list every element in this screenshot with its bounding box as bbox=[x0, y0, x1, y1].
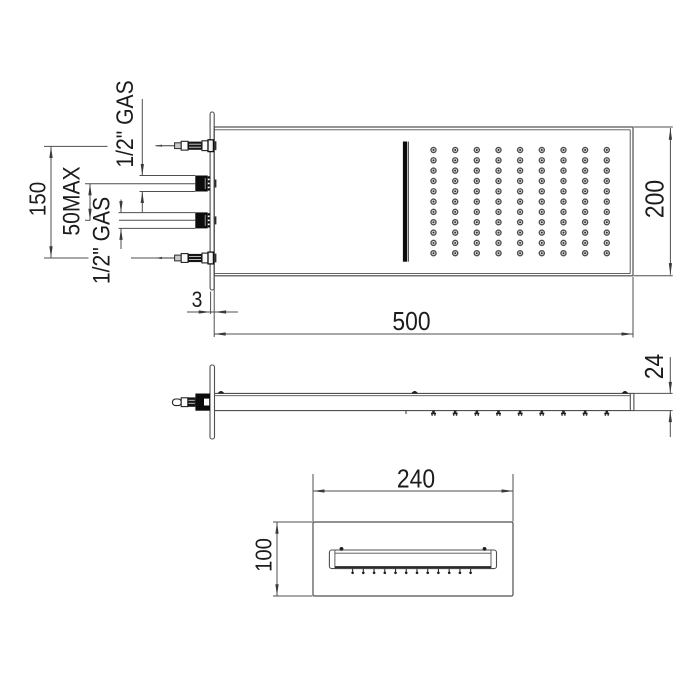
svg-text:1/2" GAS: 1/2" GAS bbox=[88, 197, 115, 284]
svg-text:200: 200 bbox=[641, 180, 670, 218]
svg-text:100: 100 bbox=[250, 538, 277, 572]
svg-text:1/2" GAS: 1/2" GAS bbox=[112, 80, 139, 167]
svg-text:150: 150 bbox=[24, 182, 51, 216]
svg-text:3: 3 bbox=[192, 288, 203, 312]
svg-text:24: 24 bbox=[641, 354, 670, 379]
svg-text:240: 240 bbox=[397, 465, 435, 494]
svg-text:500: 500 bbox=[392, 308, 430, 337]
svg-text:50MAX: 50MAX bbox=[58, 166, 85, 235]
